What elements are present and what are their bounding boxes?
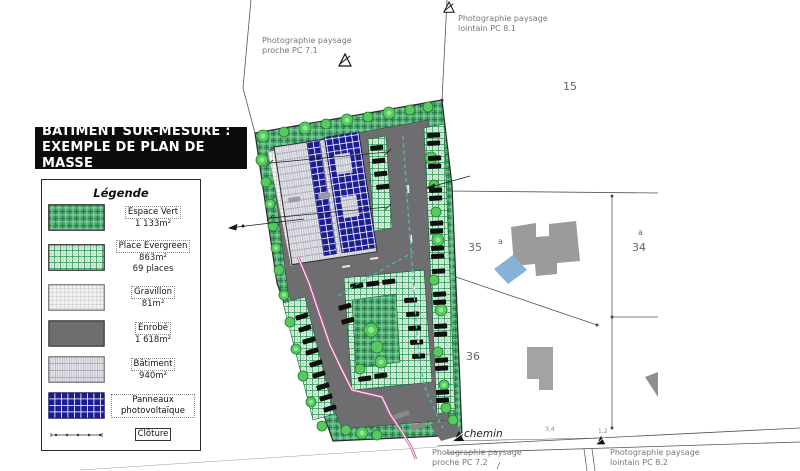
neighbor-buildings bbox=[494, 221, 658, 397]
place-evergreen-swatch bbox=[48, 244, 106, 271]
plan-title: BÂTIMENT SUR-MESURE : EXEMPLE DE PLAN DE… bbox=[35, 127, 247, 169]
legend-item-cloture: Clôture bbox=[48, 428, 200, 441]
legend-item-panneaux: Panneaux photovoltaïque bbox=[48, 392, 200, 419]
legend-value: 69 places bbox=[133, 264, 174, 274]
plan-title-line1: BÂTIMENT SUR-MESURE : bbox=[42, 124, 247, 140]
camera-marker-pc71 bbox=[339, 54, 351, 66]
legend-value: 863m² bbox=[139, 253, 167, 263]
legend-label: Place Evergreen bbox=[116, 240, 191, 253]
camera-marker-pc82 bbox=[597, 436, 606, 445]
legend-value: 81m² bbox=[142, 299, 165, 309]
legend-value: 1 618m² bbox=[135, 335, 171, 345]
neighbor-shed-triangle bbox=[645, 372, 658, 397]
legend-value: 1 133m² bbox=[135, 219, 171, 229]
legend-item-enrobe: Enrobé 1 618m² bbox=[48, 320, 200, 347]
cloture-symbol bbox=[48, 430, 106, 440]
legend-value: 940m² bbox=[139, 371, 167, 381]
espace-vert-swatch bbox=[48, 204, 106, 231]
legend-label: Gravillon bbox=[131, 286, 175, 299]
enrobe-swatch bbox=[48, 320, 106, 347]
site-plan-page: Photographie paysage proche PC 7.1 Photo… bbox=[0, 0, 800, 471]
legend-item-batiment: Bâtiment 940m² bbox=[48, 356, 200, 383]
legend-title: Légende bbox=[42, 186, 200, 200]
batiment-swatch bbox=[48, 356, 106, 383]
camera-marker-pc81 bbox=[444, 2, 454, 12]
plan-title-line2: EXEMPLE DE PLAN DE MASSE bbox=[42, 140, 247, 172]
legend-label: Enrobé bbox=[135, 322, 171, 335]
panneaux-swatch bbox=[48, 392, 106, 419]
legend-label: Bâtiment bbox=[131, 358, 176, 371]
legend-item-place-evergreen: Place Evergreen 863m² 69 places bbox=[48, 240, 200, 275]
chemin-road-lines bbox=[437, 428, 800, 471]
legend-panel: Légende Espace Vert 1 133m² Place Evergr… bbox=[41, 179, 201, 451]
legend-item-gravillon: Gravillon 81m² bbox=[48, 284, 200, 311]
legend-item-espace-vert: Espace Vert 1 133m² bbox=[48, 204, 200, 231]
neighbor-house-36 bbox=[527, 347, 553, 390]
legend-label: Panneaux photovoltaïque bbox=[111, 394, 195, 418]
legend-label: Espace Vert bbox=[125, 206, 181, 219]
gravillon-swatch bbox=[48, 284, 106, 311]
legend-label: Clôture bbox=[135, 428, 172, 441]
